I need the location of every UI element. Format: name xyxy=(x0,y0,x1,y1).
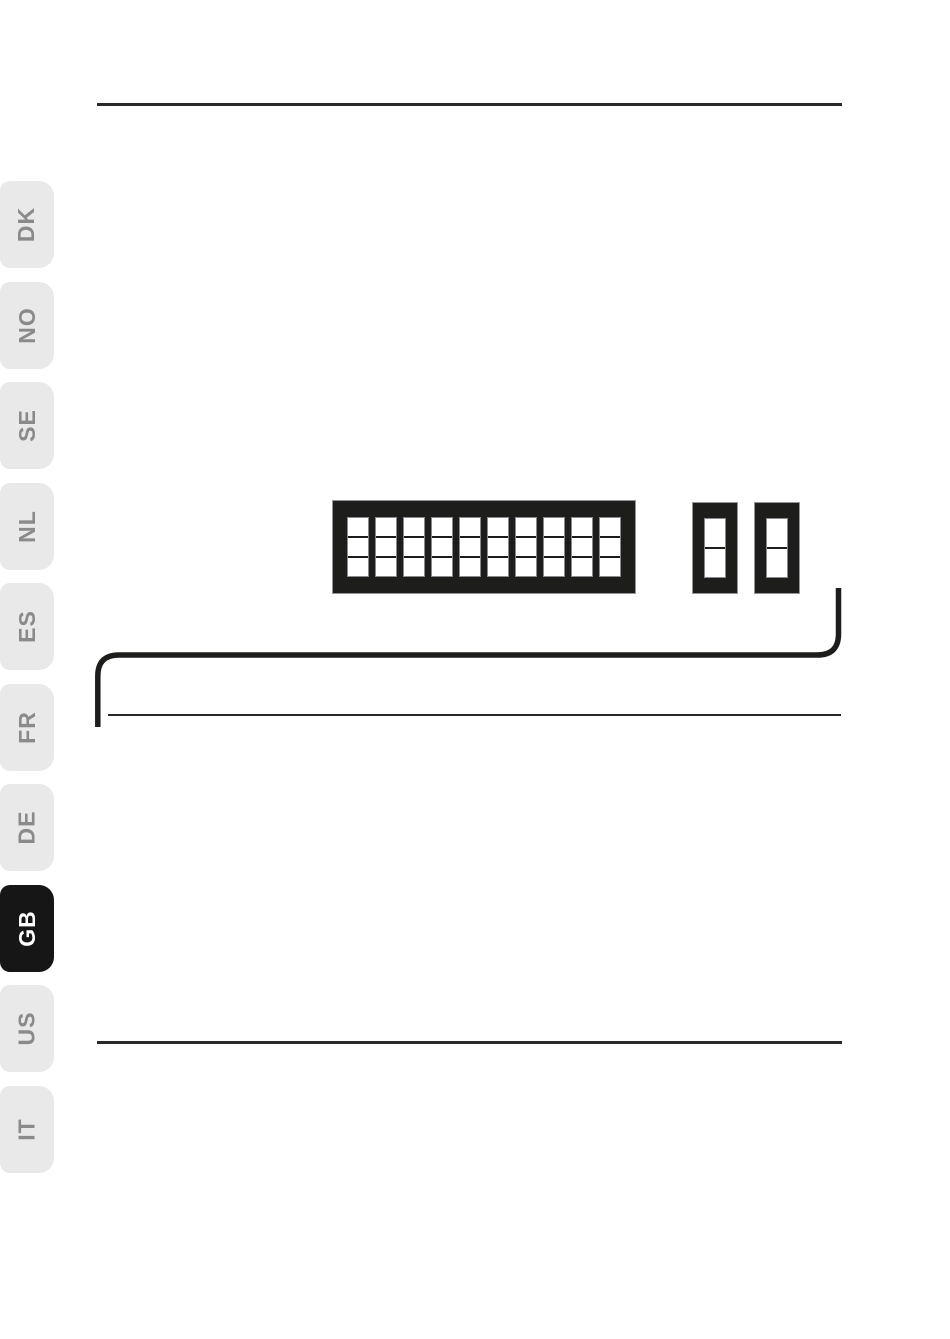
dip-switch-column-9 xyxy=(571,517,593,577)
dip-switch-cell xyxy=(600,518,620,536)
dip-switch-cell xyxy=(544,518,564,536)
dip-switch-cell xyxy=(600,536,620,556)
dip-switch-cell xyxy=(376,536,396,556)
language-tab-no[interactable]: NO xyxy=(0,282,54,369)
dip-switch-column-1 xyxy=(347,517,369,577)
dip-switch-cell xyxy=(432,556,452,576)
language-tab-nl[interactable]: NL xyxy=(0,483,54,570)
manual-page: DKNOSENLESFRDEGBUSIT xyxy=(0,0,950,1339)
language-tab-label: DK xyxy=(13,207,40,242)
single-switch-strip xyxy=(766,518,788,578)
dip-switch-cell xyxy=(600,556,620,576)
single-switch-strip xyxy=(704,518,726,578)
language-tab-label: IT xyxy=(13,1118,40,1140)
language-tab-label: GB xyxy=(14,910,41,947)
dip-switch-cell xyxy=(516,518,536,536)
dip-switch-cell xyxy=(348,556,368,576)
dip-switch-cell xyxy=(572,536,592,556)
language-tab-es[interactable]: ES xyxy=(0,583,54,670)
single-switch-cell xyxy=(767,519,787,547)
language-tab-label: DE xyxy=(13,811,40,845)
single-switch-cell xyxy=(705,519,725,547)
dip-switch-cell xyxy=(516,556,536,576)
dip-switch-column-4 xyxy=(431,517,453,577)
dip-switch-cell xyxy=(488,556,508,576)
dip-switch-column-10 xyxy=(599,517,621,577)
dip-switch-cell xyxy=(460,518,480,536)
single-switch-1 xyxy=(693,503,737,593)
language-tab-fr[interactable]: FR xyxy=(0,684,54,771)
dip-switch-cell xyxy=(432,518,452,536)
dip-switch-cell xyxy=(572,556,592,576)
dip-switch-cell xyxy=(572,518,592,536)
dip-switch-cell xyxy=(404,556,424,576)
dip-switch-cell xyxy=(460,556,480,576)
callout-bracket-line xyxy=(0,0,950,1339)
dip-switch-column-6 xyxy=(487,517,509,577)
language-tab-gb[interactable]: GB xyxy=(0,885,54,972)
language-tab-label: NL xyxy=(13,510,40,543)
dip-switch-column-3 xyxy=(403,517,425,577)
language-tab-label: SE xyxy=(14,409,41,442)
dip-switch-column-7 xyxy=(515,517,537,577)
middle-rule xyxy=(108,714,841,716)
language-tab-label: ES xyxy=(14,610,41,643)
language-tab-dk[interactable]: DK xyxy=(0,181,54,268)
dip-switch-cell xyxy=(376,556,396,576)
dip-switch-cell xyxy=(376,518,396,536)
single-switch-2 xyxy=(755,503,799,593)
dip-switch-cell xyxy=(544,536,564,556)
dip-switch-column-5 xyxy=(459,517,481,577)
dip-switch-cell xyxy=(516,536,536,556)
dip-switch-cell xyxy=(348,536,368,556)
dip-switch-cell xyxy=(460,536,480,556)
single-switch-cell xyxy=(767,547,787,577)
dip-switch-cell xyxy=(544,556,564,576)
language-tab-it[interactable]: IT xyxy=(0,1086,54,1173)
dip-switch-cell xyxy=(488,518,508,536)
dip-switch-cell xyxy=(404,536,424,556)
single-switch-cell xyxy=(705,547,725,577)
language-tab-label: US xyxy=(13,1012,40,1046)
dip-switch-column-8 xyxy=(543,517,565,577)
dip-switch-cell xyxy=(348,518,368,536)
dip-switch-cell xyxy=(404,518,424,536)
dip-switch-cell xyxy=(432,536,452,556)
language-tab-label: FR xyxy=(13,711,40,744)
language-tab-de[interactable]: DE xyxy=(0,784,54,871)
dip-switch-column-2 xyxy=(375,517,397,577)
dip-switch-cell xyxy=(488,536,508,556)
top-rule xyxy=(97,103,842,106)
dip-switch-bank xyxy=(333,501,635,593)
bottom-rule xyxy=(97,1041,842,1044)
language-tab-us[interactable]: US xyxy=(0,985,54,1072)
language-tab-label: NO xyxy=(14,307,41,344)
language-tab-se[interactable]: SE xyxy=(0,382,54,469)
